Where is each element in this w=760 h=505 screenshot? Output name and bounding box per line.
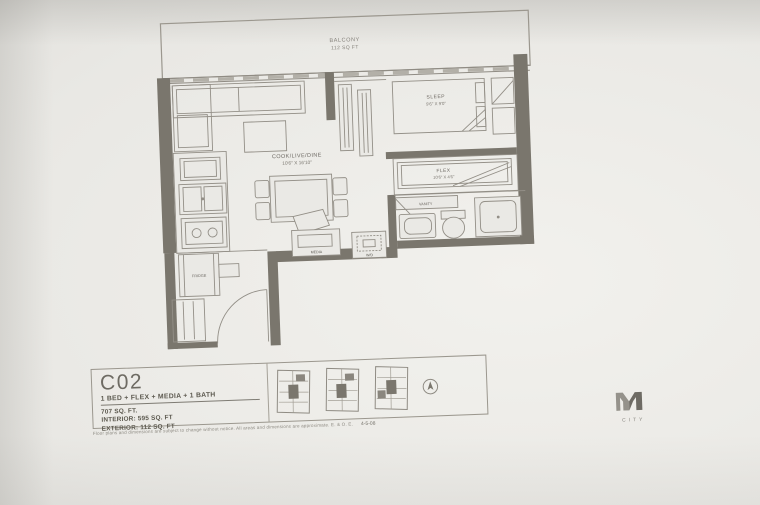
bedroom: SLEEP 9'6" X 9'0" <box>392 77 515 137</box>
plan-code: 4-5-08 <box>361 421 376 428</box>
flex-dims: 10'6" X 4'6" <box>433 174 455 180</box>
cook-live-dine-label: COOK/LIVE/DINE 10'6" X 16'10" <box>272 152 322 167</box>
unit-code: C02 <box>100 367 260 394</box>
sleep-label: SLEEP <box>426 94 445 101</box>
room-dims: 10'6" X 16'10" <box>282 160 312 167</box>
unit-info-text: C02 1 BED + FLEX + MEDIA + 1 BATH 707 SQ… <box>92 364 270 428</box>
laundry-closet: W/D <box>352 231 387 258</box>
keyplan-3 <box>372 363 414 412</box>
floorplan-sheet: BALCONY 112 SQ FT <box>0 0 760 505</box>
room-label: COOK/LIVE/DINE <box>272 152 322 160</box>
bed-fold-lines <box>461 109 486 131</box>
balcony-label: BALCONY <box>329 37 360 44</box>
counter-end <box>219 264 239 278</box>
wd-label: W/D <box>366 253 374 257</box>
entry-door-swing <box>216 290 269 344</box>
sliding-door-panel <box>357 90 372 156</box>
coffee-table <box>244 121 287 153</box>
kitchen: FRIDGE <box>173 151 240 297</box>
flex-label: FLEX <box>436 168 451 175</box>
floorplan-photo: BALCONY 112 SQ FT <box>0 0 760 505</box>
sleep-dims: 9'6" X 9'0" <box>426 101 447 107</box>
sliding-door-panel <box>338 84 353 150</box>
nightstand <box>492 107 515 134</box>
entry-door-leaf <box>267 290 269 342</box>
fridge-label: FRIDGE <box>192 274 207 279</box>
toilet <box>442 217 465 239</box>
north-arrow-icon <box>421 377 440 396</box>
dining-chair <box>333 178 348 196</box>
dining-chair <box>255 180 270 198</box>
flex-room: FLEX 10'6" X 4'6" <box>393 154 518 195</box>
brand-logo: CITY <box>612 388 655 424</box>
bathroom: VANITY <box>394 191 527 241</box>
media-label: MEDIA <box>311 250 323 254</box>
vanity-label: VANITY <box>419 202 433 207</box>
keyplan-1 <box>274 367 316 416</box>
daybed <box>397 159 512 189</box>
dining-chair <box>333 200 348 218</box>
m-logo-icon <box>614 389 653 412</box>
wardrobe <box>491 77 514 104</box>
brand-word: CITY <box>613 416 655 424</box>
balcony-area-label: 112 SQ FT <box>331 45 359 52</box>
keyplan-2 <box>323 365 365 414</box>
floorplan-drawing: BALCONY 112 SQ FT <box>0 0 760 374</box>
living-area <box>172 81 306 155</box>
dining-chair <box>256 202 271 220</box>
sliding-doors <box>334 80 389 157</box>
pillow <box>475 82 485 102</box>
keyplan-strip <box>267 356 487 422</box>
